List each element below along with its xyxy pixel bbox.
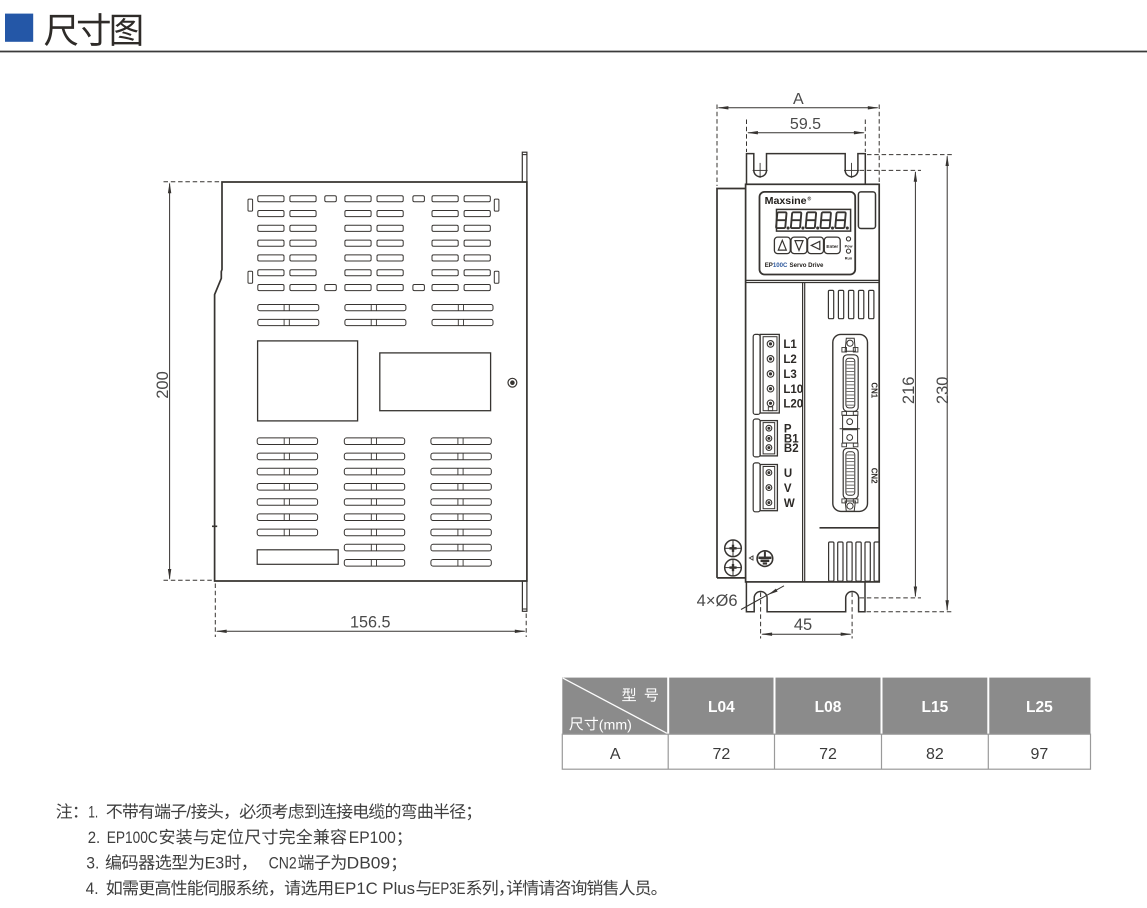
svg-text:U: U [784,468,792,480]
svg-text:W: W [784,498,795,510]
svg-text:Servo Drive: Servo Drive [790,262,824,269]
svg-text:1.: 1. [88,803,98,822]
svg-text:CN2: CN2 [269,854,297,873]
svg-text:EP3E: EP3E [432,879,466,898]
svg-text:97: 97 [1031,746,1049,763]
svg-text:200: 200 [154,371,172,399]
svg-text:EP100: EP100 [349,828,396,847]
svg-text:Maxsine: Maxsine [765,196,807,207]
svg-text:L1: L1 [783,339,797,351]
svg-text:Enter: Enter [826,244,838,249]
svg-text:L2: L2 [783,354,796,366]
svg-text:(mm): (mm) [599,717,632,733]
svg-text:59.5: 59.5 [790,116,821,133]
svg-text:A: A [793,91,804,108]
svg-text:Pow: Pow [845,244,853,248]
svg-text:CN2: CN2 [870,468,880,484]
svg-text:45: 45 [794,616,812,634]
svg-text:®: ® [808,196,812,203]
svg-text:2.: 2. [88,828,101,847]
svg-text:156.5: 156.5 [350,613,391,631]
svg-text:3.: 3. [86,854,99,873]
svg-text:EP1C Plus: EP1C Plus [334,879,415,898]
svg-text:A: A [610,746,621,763]
svg-text:72: 72 [819,746,837,763]
svg-text:Run: Run [845,256,853,260]
svg-text:CN1: CN1 [870,382,880,398]
svg-text:230: 230 [934,377,952,405]
svg-text:L25: L25 [1026,699,1053,716]
svg-text:L10: L10 [783,384,803,396]
svg-text:L3: L3 [783,369,796,381]
svg-text:E3: E3 [205,854,225,873]
svg-text:L08: L08 [815,699,842,716]
svg-text:/: / [186,803,191,822]
svg-text:82: 82 [926,746,944,763]
svg-text:L04: L04 [708,699,735,716]
svg-text:L20: L20 [783,399,803,411]
svg-text:DB09: DB09 [347,854,390,873]
svg-text:EP100C: EP100C [107,828,158,847]
svg-text:L15: L15 [922,699,949,716]
svg-text:4×Ø6: 4×Ø6 [697,592,738,610]
svg-text:72: 72 [712,746,730,763]
svg-text:EP100C: EP100C [765,262,788,269]
svg-text:4.: 4. [86,879,99,898]
svg-text:V: V [784,483,792,495]
svg-text:216: 216 [900,377,918,405]
svg-text:B2: B2 [784,443,799,455]
